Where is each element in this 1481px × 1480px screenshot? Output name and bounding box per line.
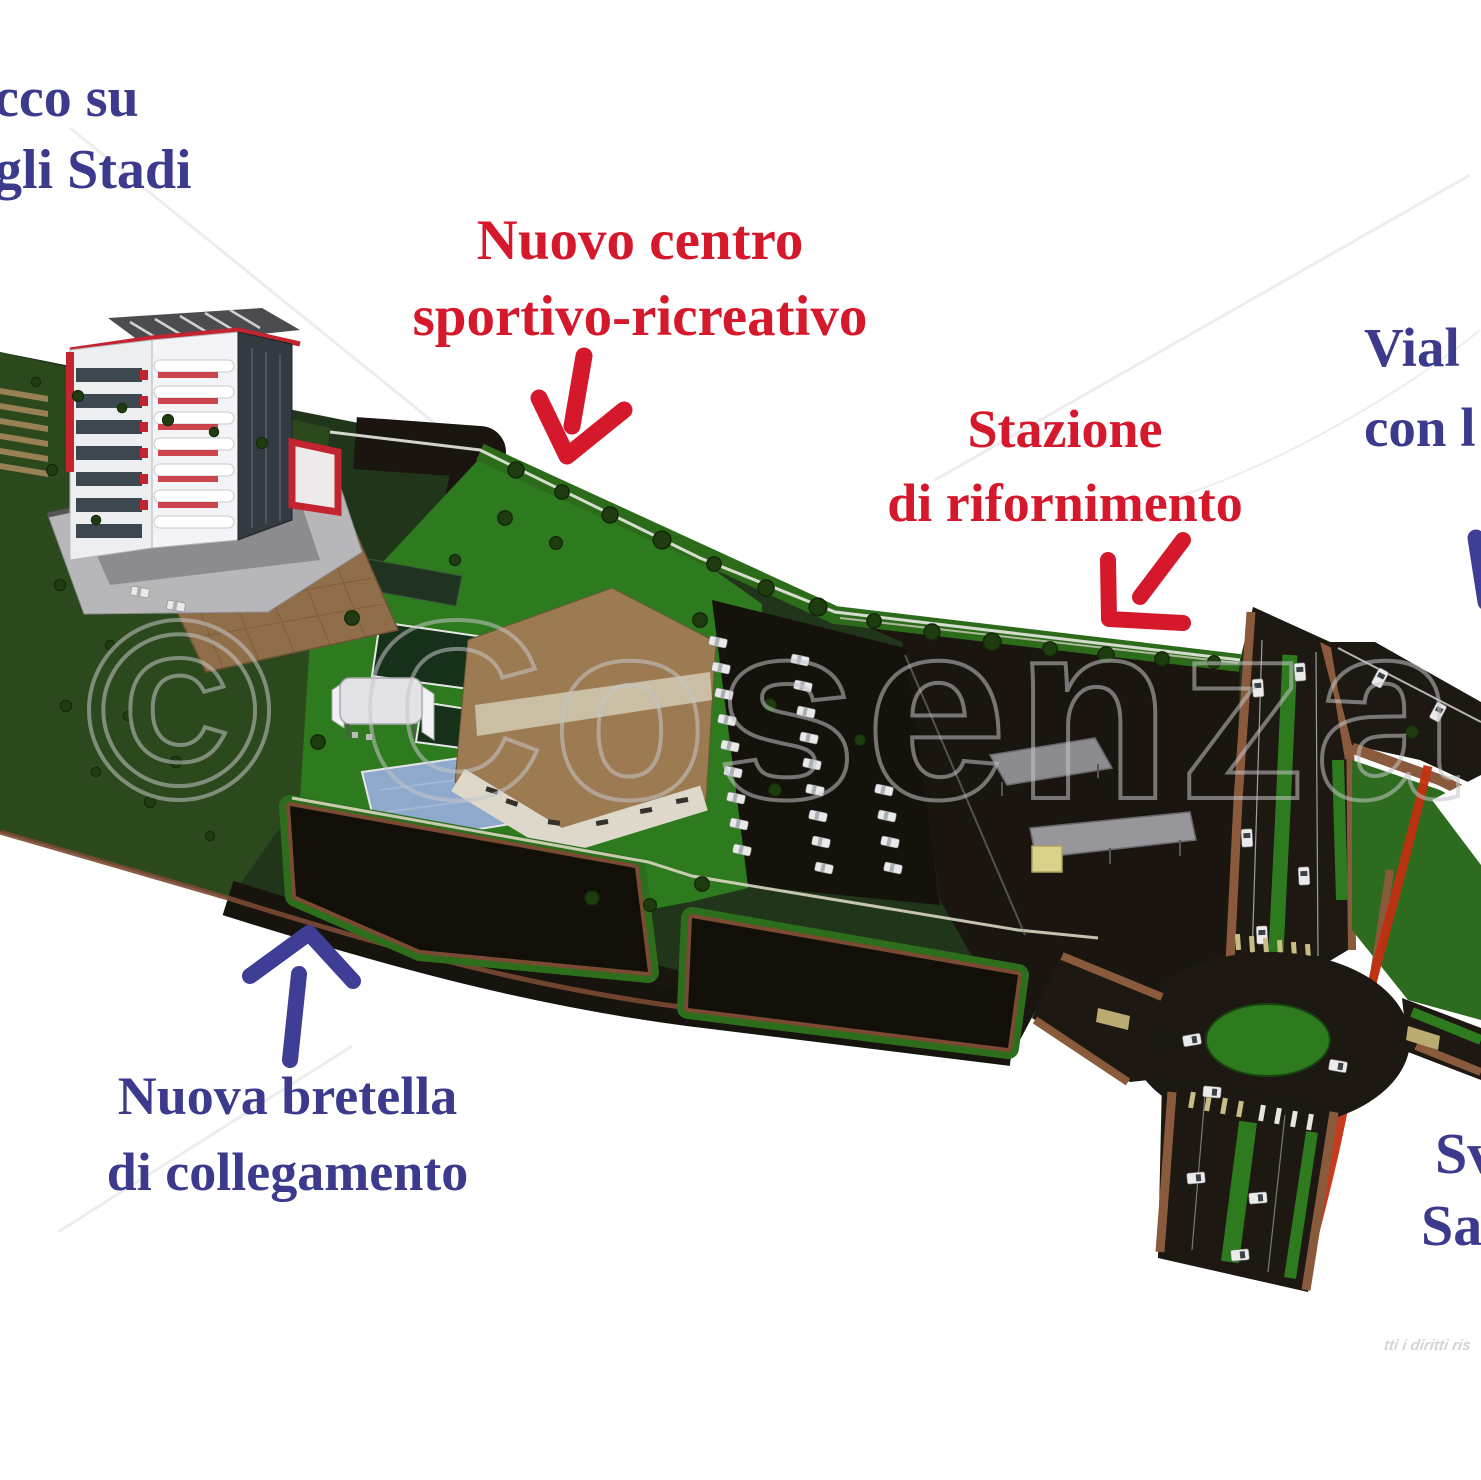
slide-canvas: © Cosenza Chan cco su gli Stadi Nuovo ce… — [0, 0, 1481, 1480]
label-line-2: gli Stadi — [0, 134, 192, 206]
arrow-nuovo-centro — [539, 356, 624, 456]
label-viale-degli-stadi: cco su gli Stadi — [0, 62, 192, 206]
apartment-tower — [66, 308, 338, 585]
label-line-2: sportivo-ricreativo — [340, 279, 940, 355]
rights-notice: tti i diritti ris — [1383, 1337, 1472, 1354]
label-svincolo: Sv Sa — [1421, 1118, 1481, 1262]
label-line-1: cco su — [0, 62, 192, 134]
label-line-1: Vial — [1364, 308, 1476, 388]
roundabout-green-center — [1206, 1004, 1330, 1076]
arrow-viale-partial — [1476, 538, 1481, 602]
label-stazione-rifornimento: Stazione di rifornimento — [820, 392, 1310, 540]
south-branch-road — [1158, 1080, 1335, 1292]
label-line-1: Sv — [1435, 1118, 1481, 1190]
label-line-2: di rifornimento — [820, 466, 1310, 540]
label-nuova-bretella: Nuova bretella di collegamento — [40, 1058, 535, 1210]
label-line-2: di collegamento — [40, 1134, 535, 1210]
label-nuovo-centro: Nuovo centro sportivo-ricreativo — [340, 203, 940, 355]
tower-red-frame — [292, 442, 338, 512]
label-line-1: Nuova bretella — [40, 1058, 535, 1134]
label-line-1: Stazione — [820, 392, 1310, 466]
label-viale-right: Vial con l — [1364, 308, 1476, 468]
arrow-bretella — [250, 933, 353, 1060]
watermark-text: © Cosenza Chan — [85, 568, 1481, 853]
label-line-1: Nuovo centro — [340, 203, 940, 279]
label-line-2: con l — [1364, 388, 1476, 468]
label-line-2: Sa — [1421, 1190, 1481, 1262]
